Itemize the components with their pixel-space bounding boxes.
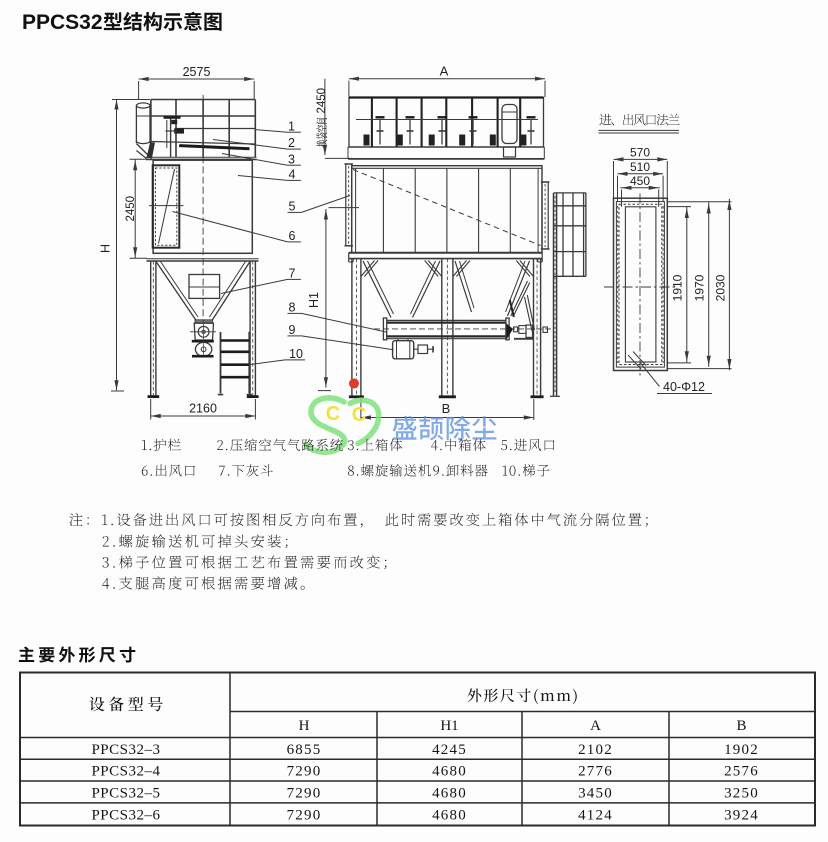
svg-text:PPCS32: PPCS32 [22, 11, 103, 34]
svg-text:2160: 2160 [189, 402, 217, 416]
svg-text:1902: 1902 [724, 742, 759, 758]
svg-text:H: H [299, 718, 310, 734]
svg-text:3450: 3450 [578, 785, 613, 801]
svg-text:8: 8 [289, 301, 296, 315]
svg-text:3: 3 [288, 152, 295, 166]
svg-text:4680: 4680 [432, 785, 467, 801]
svg-text:A: A [590, 718, 601, 734]
svg-text:7290: 7290 [287, 785, 322, 801]
svg-text:4680: 4680 [432, 764, 467, 780]
svg-text:C: C [326, 403, 340, 425]
svg-text:570: 570 [630, 145, 650, 159]
svg-text:2450: 2450 [316, 88, 328, 114]
svg-text:450: 450 [630, 174, 650, 188]
svg-text:3250: 3250 [724, 785, 759, 801]
svg-text:3924: 3924 [724, 807, 759, 823]
svg-text:PPCS32–3: PPCS32–3 [91, 742, 160, 758]
svg-text:2030: 2030 [714, 274, 728, 301]
svg-text:B: B [442, 401, 451, 416]
svg-text:10: 10 [289, 347, 303, 361]
svg-text:510: 510 [630, 160, 650, 174]
svg-text:4: 4 [289, 168, 296, 182]
svg-text:1910: 1910 [671, 274, 685, 301]
svg-text:H1: H1 [307, 292, 321, 308]
svg-text:2: 2 [288, 136, 295, 150]
svg-text:2776: 2776 [578, 764, 613, 780]
svg-text:C: C [352, 404, 366, 426]
svg-text:7: 7 [289, 267, 296, 281]
svg-text:B: B [736, 718, 746, 734]
svg-text:2575: 2575 [183, 65, 211, 79]
svg-text:H: H [99, 244, 113, 253]
svg-text:4245: 4245 [432, 742, 467, 758]
svg-text:4680: 4680 [432, 807, 467, 823]
svg-text:6: 6 [289, 229, 296, 243]
svg-text:1: 1 [288, 119, 295, 133]
svg-text:40-Φ12: 40-Φ12 [663, 380, 705, 394]
svg-text:6855: 6855 [287, 742, 322, 758]
svg-text:PPCS32–4: PPCS32–4 [91, 764, 160, 780]
svg-text:PPCS32–6: PPCS32–6 [91, 807, 160, 823]
svg-text:2576: 2576 [724, 764, 759, 780]
svg-text:9: 9 [289, 323, 296, 337]
svg-text:7290: 7290 [287, 764, 322, 780]
svg-text:A: A [440, 64, 449, 79]
svg-text:2450: 2450 [125, 196, 137, 222]
svg-text:7290: 7290 [287, 807, 322, 823]
svg-text:H1: H1 [440, 718, 458, 734]
svg-text:2102: 2102 [578, 742, 613, 758]
svg-text:4124: 4124 [578, 807, 613, 823]
svg-text:1970: 1970 [693, 274, 707, 301]
svg-text:PPCS32–5: PPCS32–5 [91, 785, 160, 801]
svg-text:5: 5 [289, 200, 296, 214]
